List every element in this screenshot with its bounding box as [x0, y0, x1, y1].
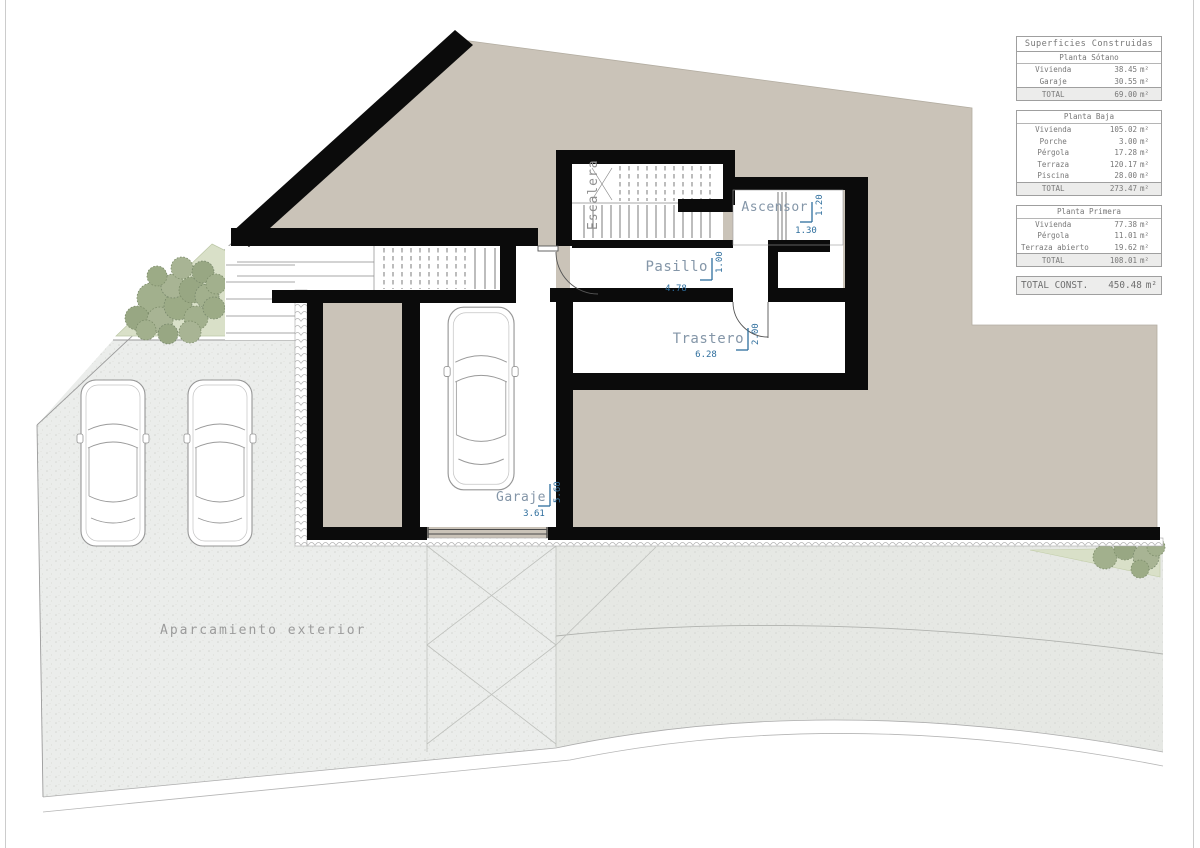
row-value: 19.62	[1089, 244, 1137, 252]
table-row: Garaje30.55m²	[1017, 76, 1161, 88]
row-unit: m²	[1137, 244, 1157, 252]
stair-landing-area	[230, 246, 500, 292]
grand-total-box: TOTAL CONST. 450.48 m²	[1016, 276, 1162, 295]
table-row: Vivienda105.02m²	[1017, 124, 1161, 136]
dim-trastero-width: 6.28	[695, 350, 717, 360]
row-value: 77.38	[1085, 221, 1137, 229]
label-garaje: Garaje	[496, 490, 546, 505]
row-value: 30.55	[1085, 78, 1137, 86]
row-value: 38.45	[1085, 66, 1137, 74]
wall-bottom-right	[548, 527, 1160, 540]
table-planta-sotano: Superficies Construidas Planta Sótano Vi…	[1016, 36, 1162, 101]
label-pasillo: Pasillo	[645, 259, 708, 275]
row-label: Porche	[1021, 138, 1085, 146]
row-unit: m²	[1137, 91, 1157, 99]
table-row: Piscina28.00m²	[1017, 170, 1161, 182]
row-unit: m²	[1137, 149, 1157, 157]
label-ascensor: Ascensor	[741, 200, 808, 215]
table-title: Superficies Construidas	[1017, 37, 1161, 52]
grand-total-label: TOTAL CONST.	[1021, 280, 1091, 291]
row-label: Terraza	[1021, 161, 1085, 169]
parked-car-2	[184, 380, 256, 546]
label-escalera: Escalera	[586, 159, 601, 230]
label-trastero: Trastero	[673, 331, 744, 347]
row-value: 28.00	[1085, 172, 1137, 180]
section-subtitle: Planta Baja	[1017, 111, 1161, 124]
row-unit: m²	[1137, 185, 1157, 193]
dim-ascensor-depth: 1.20	[815, 194, 825, 216]
dim-trastero-depth: 2.00	[751, 323, 761, 345]
row-label: Garaje	[1021, 78, 1085, 86]
row-label: Terraza abierto	[1021, 244, 1089, 252]
row-unit: m²	[1137, 172, 1157, 180]
section-subtitle: Planta Sótano	[1017, 52, 1161, 65]
table-total-row: TOTAL108.01m²	[1017, 253, 1161, 266]
row-label: Pérgola	[1021, 149, 1085, 157]
dim-garaje-depth: 5.60	[553, 481, 563, 503]
row-label: Vivienda	[1021, 221, 1085, 229]
dim-garaje-width: 3.61	[523, 509, 545, 519]
table-planta-primera: Planta Primera Vivienda77.38m²Pérgola11.…	[1016, 205, 1162, 267]
row-label: Vivienda	[1021, 66, 1085, 74]
garage-car	[444, 307, 518, 490]
table-row: Vivienda38.45m²	[1017, 64, 1161, 76]
row-value: 17.28	[1085, 149, 1137, 157]
table-row: Terraza120.17m²	[1017, 159, 1161, 171]
row-label: TOTAL	[1021, 257, 1085, 265]
table-row: Vivienda77.38m²	[1017, 219, 1161, 231]
row-value: 69.00	[1085, 91, 1137, 99]
table-total-row: TOTAL69.00m²	[1017, 87, 1161, 100]
row-label: TOTAL	[1021, 185, 1085, 193]
dim-ascensor-width: 1.30	[795, 226, 817, 236]
table-row: Terraza abierto19.62m²	[1017, 242, 1161, 254]
pasillo-door-leaf	[538, 246, 558, 251]
row-unit: m²	[1137, 161, 1157, 169]
row-value: 120.17	[1085, 161, 1137, 169]
row-unit: m²	[1137, 66, 1157, 74]
table-row: Porche3.00m²	[1017, 136, 1161, 148]
table-total-row: TOTAL273.47m²	[1017, 182, 1161, 195]
row-unit: m²	[1137, 138, 1157, 146]
row-value: 3.00	[1085, 138, 1137, 146]
section-subtitle: Planta Primera	[1017, 206, 1161, 219]
parked-car-1	[77, 380, 149, 546]
surface-areas-panel: Superficies Construidas Planta Sótano Vi…	[1016, 36, 1162, 295]
row-unit: m²	[1137, 257, 1157, 265]
table-row: Pérgola17.28m²	[1017, 147, 1161, 159]
row-value: 108.01	[1085, 257, 1137, 265]
row-unit: m²	[1137, 78, 1157, 86]
grand-total-value: 450.48	[1091, 280, 1145, 291]
row-value: 273.47	[1085, 185, 1137, 193]
wall-bottom-left	[307, 527, 427, 540]
row-unit: m²	[1137, 232, 1157, 240]
row-unit: m²	[1137, 126, 1157, 134]
row-label: Vivienda	[1021, 126, 1085, 134]
row-value: 11.01	[1085, 232, 1137, 240]
row-unit: m²	[1137, 221, 1157, 229]
row-label: Piscina	[1021, 172, 1085, 180]
row-label: Pérgola	[1021, 232, 1085, 240]
row-value: 105.02	[1085, 126, 1137, 134]
grand-total-unit: m²	[1146, 280, 1157, 291]
dim-pasillo-depth: 1.00	[715, 251, 725, 273]
plan-sheet: Escalera Ascensor 1.30 1.20 Pasillo 4.78…	[0, 0, 1200, 848]
row-label: TOTAL	[1021, 91, 1085, 99]
table-row: Pérgola11.01m²	[1017, 230, 1161, 242]
dim-pasillo-width: 4.78	[665, 284, 687, 294]
table-planta-baja: Planta Baja Vivienda105.02m²Porche3.00m²…	[1016, 110, 1162, 196]
label-aparcamiento-exterior: Aparcamiento exterior	[160, 623, 366, 638]
